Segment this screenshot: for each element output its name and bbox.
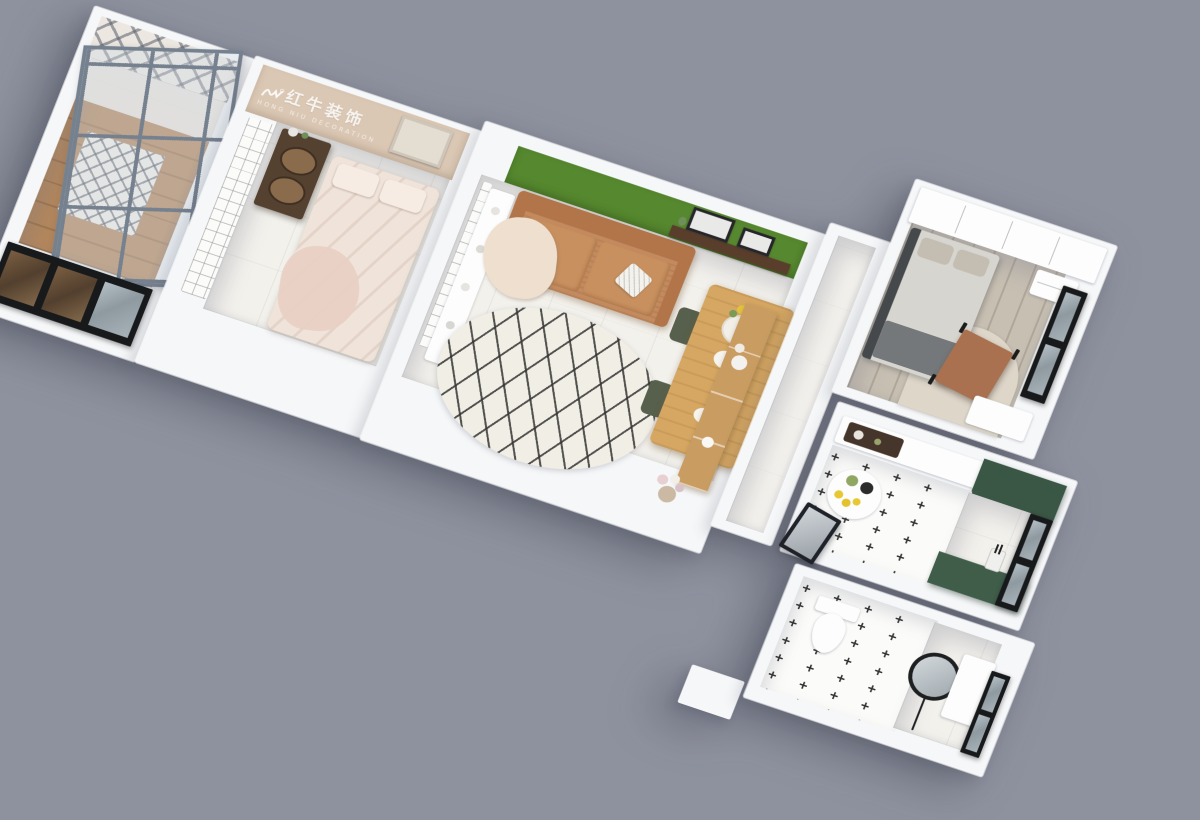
wardrobe-door-seam [1048,237,1060,265]
sideboard-flowers [733,342,746,354]
wardrobe-door-seam [954,205,966,233]
exterior-wall-step [677,664,745,720]
black-bowl [858,480,875,495]
board-item [873,438,882,446]
dresser-rattan-door [264,172,310,210]
window-pane [88,282,145,338]
table-flowers [844,474,859,488]
board-bowl [852,429,865,441]
bed-pillow [916,236,955,266]
sideboard-jar [700,435,715,449]
figurine [460,282,472,293]
bed-pillow [951,248,990,278]
sideboard-vase [729,353,750,372]
lemon [851,497,861,506]
floorplan-scene: 红牛装饰 HONG NIU DECORATION [0,0,1200,820]
flower-pink [656,473,670,486]
bed-pillow [331,162,381,198]
figurine [445,320,457,331]
mirror-glass [784,507,837,560]
window-pane [41,266,98,322]
figurine [490,206,502,217]
lemon [840,497,852,508]
apartment-3d-plan: 红牛装饰 HONG NIU DECORATION [0,6,1200,820]
dresser-rattan-door [276,142,322,180]
wardrobe-door-seam [1001,221,1013,249]
bed-pillow [378,178,428,214]
mirror-stand [911,697,926,730]
window-pane [0,250,51,306]
